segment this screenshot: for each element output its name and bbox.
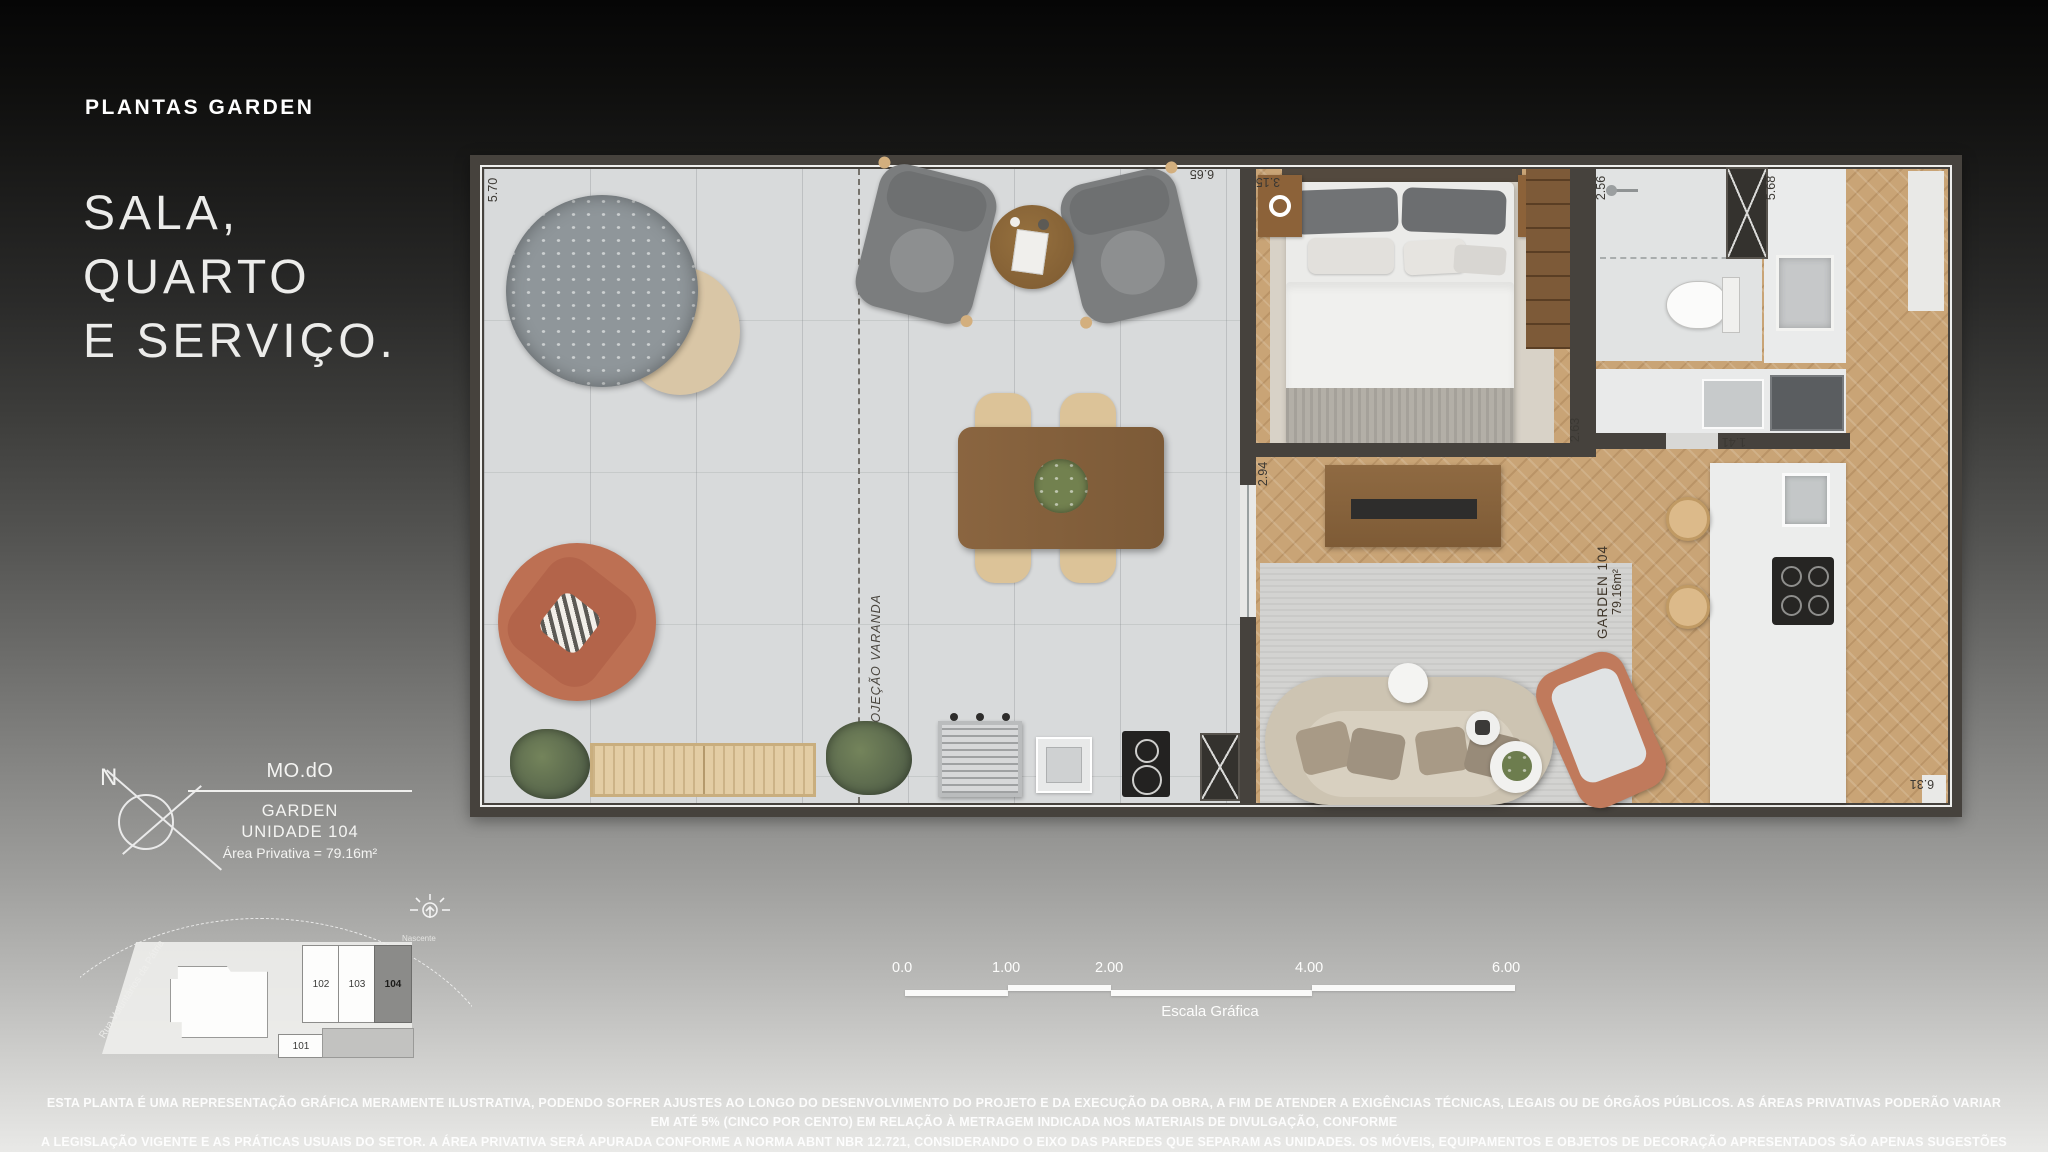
plant (510, 729, 590, 799)
divider (188, 790, 412, 792)
bench-divider (703, 746, 705, 794)
garden-unit-label: GARDEN 104 (1595, 527, 1610, 657)
laundry-tank-sink (1776, 255, 1834, 331)
sink-basin (1046, 747, 1082, 783)
table-plant (1034, 459, 1088, 513)
headline-line-1: SALA, (83, 182, 397, 246)
page-title: PLANTAS GARDEN (85, 96, 314, 120)
graphic-scale: 0.0 1.00 2.00 4.00 6.00 Escala Gráfica (880, 960, 1540, 1026)
bed-pillow-dark (1293, 187, 1398, 235)
tv-icon (1351, 499, 1477, 519)
terracotta-daybed (498, 543, 656, 701)
bed-duvet (1286, 282, 1514, 388)
disclaimer-line-1: ESTA PLANTA É UMA REPRESENTAÇÃO GRÁFICA … (40, 1094, 2008, 1133)
sofa-pillow (1345, 727, 1406, 782)
coffee-table-vase (1038, 219, 1049, 230)
scale-segment (905, 990, 1008, 996)
sunrise-icon (408, 890, 452, 936)
legal-disclaimer: ESTA PLANTA É UMA REPRESENTAÇÃO GRÁFICA … (40, 1094, 2008, 1152)
site-unit-103: 103 (338, 945, 376, 1023)
bedroom-wall (1256, 443, 1572, 457)
glass-door (1240, 485, 1256, 617)
sunrise-label: Nascente (402, 934, 436, 943)
scale-segment (1312, 985, 1515, 991)
dim-label: 1.41 (1714, 435, 1754, 449)
burner (1808, 566, 1829, 587)
dim-label: 6.65 (1182, 167, 1222, 181)
toilet-tank (1722, 277, 1740, 333)
burner (1132, 765, 1162, 795)
dim-label: 3.15 (1248, 175, 1288, 189)
bar-stool (1666, 585, 1710, 629)
tray-icon (1475, 720, 1490, 735)
building-name: GARDEN (188, 801, 412, 822)
burner (1781, 595, 1802, 616)
side-table-small (1466, 711, 1500, 745)
scale-caption: Escala Gráfica (880, 1003, 1540, 1020)
headline-line-3: E SERVIÇO. (83, 310, 397, 374)
shaft-icon (1200, 733, 1240, 801)
kitchen-counter-sink (1702, 379, 1764, 429)
tv-console (1325, 465, 1501, 547)
scale-tick-2: 2.00 (1095, 960, 1123, 976)
bed-pillow-dark (1401, 187, 1506, 235)
barbecue-grill (938, 721, 1022, 797)
island-cooktop (1772, 557, 1834, 625)
kitchen-island (1710, 463, 1846, 803)
coffee-table-tray (1011, 229, 1049, 275)
dim-label: 2.94 (1256, 455, 1270, 493)
coffee-table (990, 205, 1074, 289)
site-unit-104-highlighted: 104 (374, 945, 412, 1023)
glass-door-line (1247, 485, 1249, 617)
headline: SALA, QUARTO E SERVIÇO. (83, 182, 397, 374)
burner (1781, 566, 1802, 587)
table-lamp-icon (1269, 195, 1291, 217)
bed-knit-blanket (1286, 388, 1514, 447)
brochure-page: PLANTAS GARDEN SALA, QUARTO E SERVIÇO. N… (0, 0, 2048, 1152)
dim-label: 6.31 (1902, 777, 1942, 791)
headline-line-2: QUARTO (83, 246, 397, 310)
site-unit-102: 102 (302, 945, 340, 1023)
plunge-pool (506, 195, 698, 387)
island-sink (1782, 473, 1830, 527)
unit-number: UNIDADE 104 (188, 822, 412, 843)
scale-tick-6: 6.00 (1492, 960, 1520, 976)
wardrobe (1526, 169, 1570, 349)
cooktop-two-burner (1122, 731, 1170, 797)
brand-name: MO.dO (188, 760, 412, 783)
doorway (1666, 433, 1718, 449)
unit-floor-label: GARDEN 104 79.16m² (1595, 527, 1639, 657)
grill-knob (1002, 713, 1010, 721)
site-plan: Nascente Rua Voluntários da Pátria 102 1… (80, 888, 472, 1086)
varanda-sink (1036, 737, 1092, 793)
floor-plan: PROJEÇÃO VARANDA (470, 155, 1962, 817)
plant (826, 721, 912, 795)
dim-label: 2.56 (1594, 169, 1608, 207)
dim-label: 5.68 (1764, 169, 1778, 207)
dim-label: 2.63 (1568, 411, 1582, 449)
garden-unit-area: 79.16m² (1610, 527, 1624, 657)
plant-small (1502, 751, 1532, 781)
private-area: Área Privativa = 79.16m² (188, 845, 412, 861)
bar-stool (1666, 497, 1710, 541)
bed-pillow-white (1308, 238, 1394, 274)
scale-segment (1008, 985, 1111, 991)
floor-lamp-globe (1388, 663, 1428, 703)
bench (590, 743, 816, 797)
side-table-plant (1490, 741, 1542, 793)
dining-table (958, 427, 1164, 549)
grill-knob (976, 713, 984, 721)
scale-tick-1: 1.00 (992, 960, 1020, 976)
site-common-area (322, 1028, 414, 1058)
burner (1135, 739, 1159, 763)
scale-tick-4: 4.00 (1295, 960, 1323, 976)
shaft-icon (1726, 167, 1768, 259)
dim-label: 5.70 (486, 171, 500, 209)
coffee-table-vase (1010, 217, 1020, 227)
scale-tick-0: 0.0 (892, 960, 912, 976)
bed (1286, 182, 1514, 447)
toilet-bowl (1666, 281, 1726, 329)
refrigerator (1770, 375, 1844, 431)
site-building-footprint (170, 966, 268, 1038)
bed-headboard (1282, 169, 1522, 182)
unit-legend: MO.dO GARDEN UNIDADE 104 Área Privativa … (188, 760, 412, 861)
sofa-pillow (1414, 726, 1470, 777)
bed-pillow-small (1453, 244, 1507, 276)
burner (1808, 595, 1829, 616)
site-unit-101: 101 (278, 1034, 324, 1058)
scale-segment (1111, 990, 1312, 996)
grill-knob (950, 713, 958, 721)
disclaimer-line-2: A LEGISLAÇÃO VIGENTE E AS PRÁTICAS USUAI… (40, 1133, 2008, 1152)
